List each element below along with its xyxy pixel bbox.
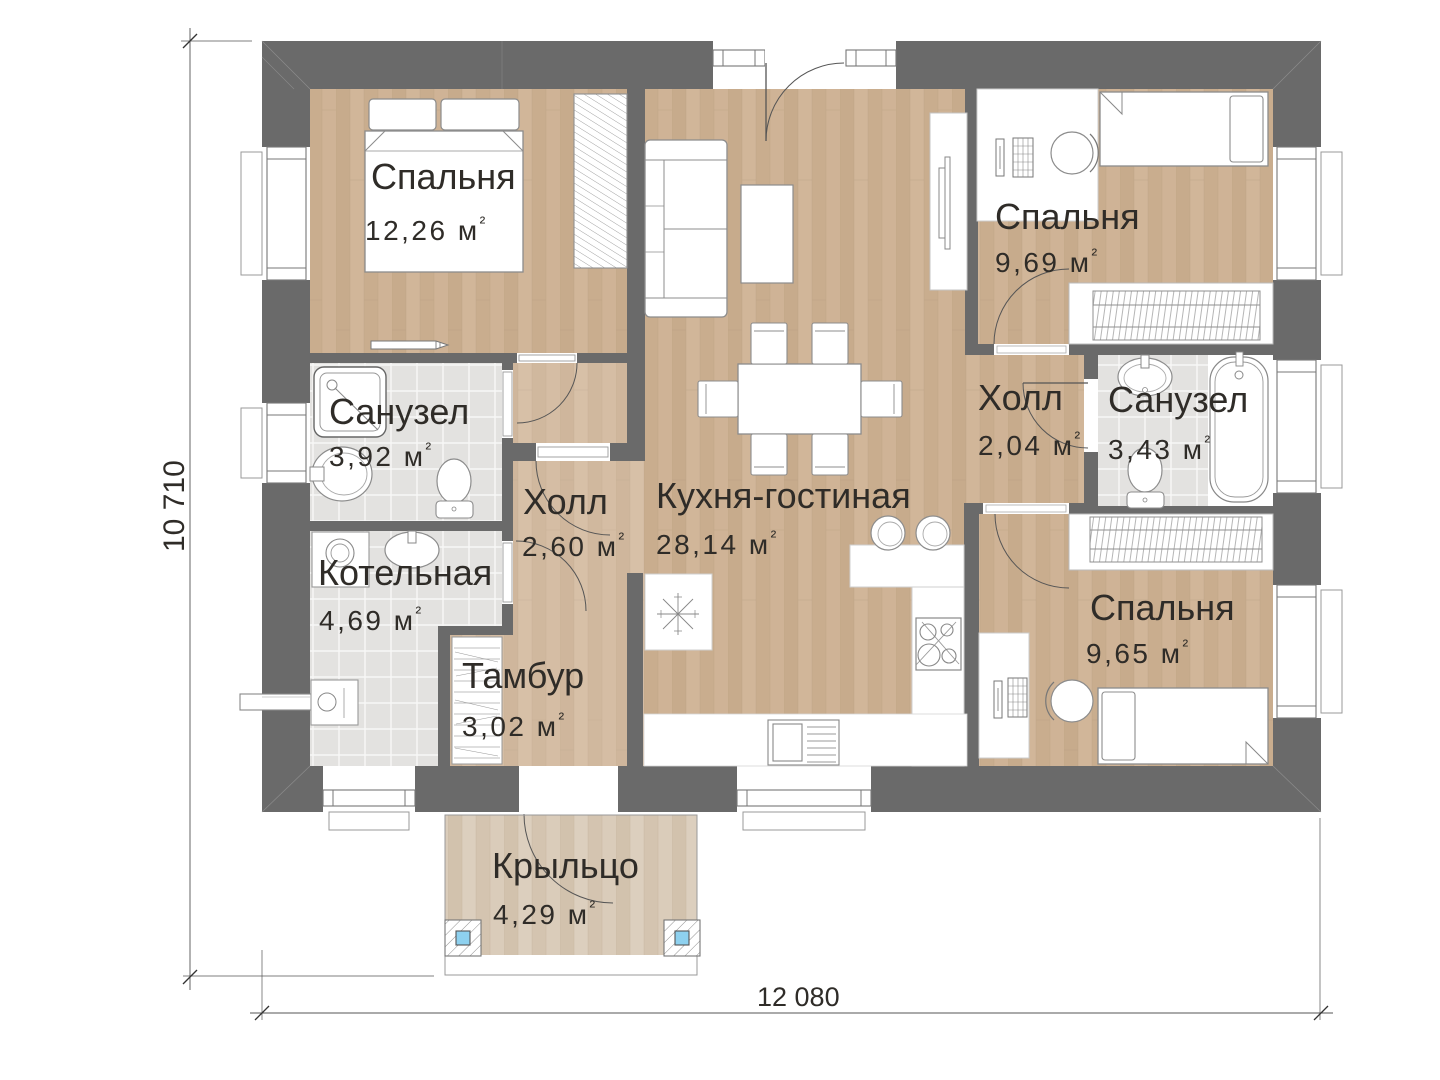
svg-text:Котельная: Котельная — [318, 552, 492, 593]
svg-text:12,26 м²: 12,26 м² — [365, 213, 488, 246]
svg-text:3,92 м²: 3,92 м² — [329, 439, 434, 472]
svg-text:28,14 м²: 28,14 м² — [656, 527, 779, 560]
svg-text:10 710: 10 710 — [158, 460, 191, 552]
svg-text:Спальня: Спальня — [371, 156, 516, 197]
svg-text:Холл: Холл — [978, 377, 1063, 418]
svg-text:Холл: Холл — [523, 481, 608, 522]
svg-text:Крыльцо: Крыльцо — [492, 845, 639, 886]
svg-text:Санузел: Санузел — [329, 391, 469, 432]
svg-text:4,69 м²: 4,69 м² — [319, 603, 424, 636]
svg-text:2,60 м²: 2,60 м² — [522, 529, 627, 562]
svg-text:Спальня: Спальня — [995, 196, 1140, 237]
svg-text:9,65 м²: 9,65 м² — [1086, 636, 1191, 669]
svg-text:Кухня-гостиная: Кухня-гостиная — [656, 475, 911, 516]
svg-text:2,04 м²: 2,04 м² — [978, 428, 1083, 461]
svg-text:9,69 м²: 9,69 м² — [995, 245, 1100, 278]
svg-text:12 080: 12 080 — [757, 982, 840, 1012]
svg-text:Спальня: Спальня — [1090, 587, 1235, 628]
svg-text:3,43 м²: 3,43 м² — [1108, 432, 1213, 465]
svg-text:3,02 м²: 3,02 м² — [462, 709, 567, 742]
svg-text:Тамбур: Тамбур — [462, 655, 584, 696]
svg-text:4,29 м²: 4,29 м² — [493, 897, 598, 930]
svg-text:Санузел: Санузел — [1108, 379, 1248, 420]
